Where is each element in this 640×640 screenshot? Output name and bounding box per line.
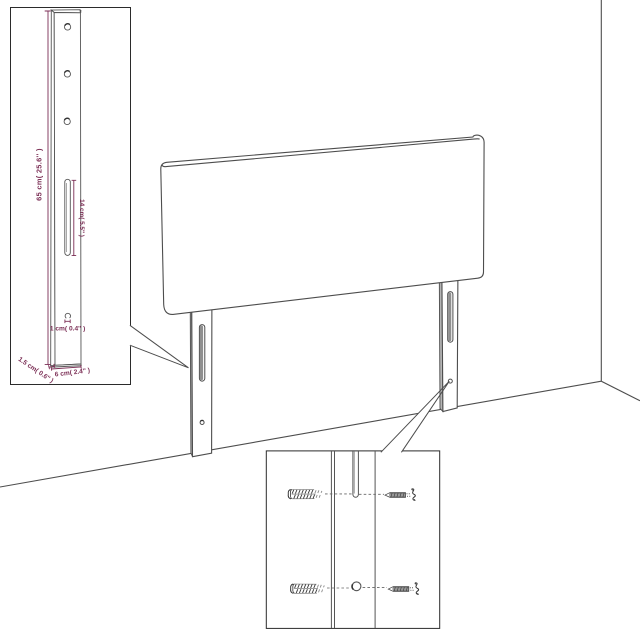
svg-text:1 cm( 0.4'' ): 1 cm( 0.4'' ): [50, 325, 85, 332]
svg-text:65 cm( 25.6'' ): 65 cm( 25.6'' ): [35, 148, 44, 201]
svg-text:14 cm( 5.5'' ): 14 cm( 5.5'' ): [78, 199, 85, 237]
